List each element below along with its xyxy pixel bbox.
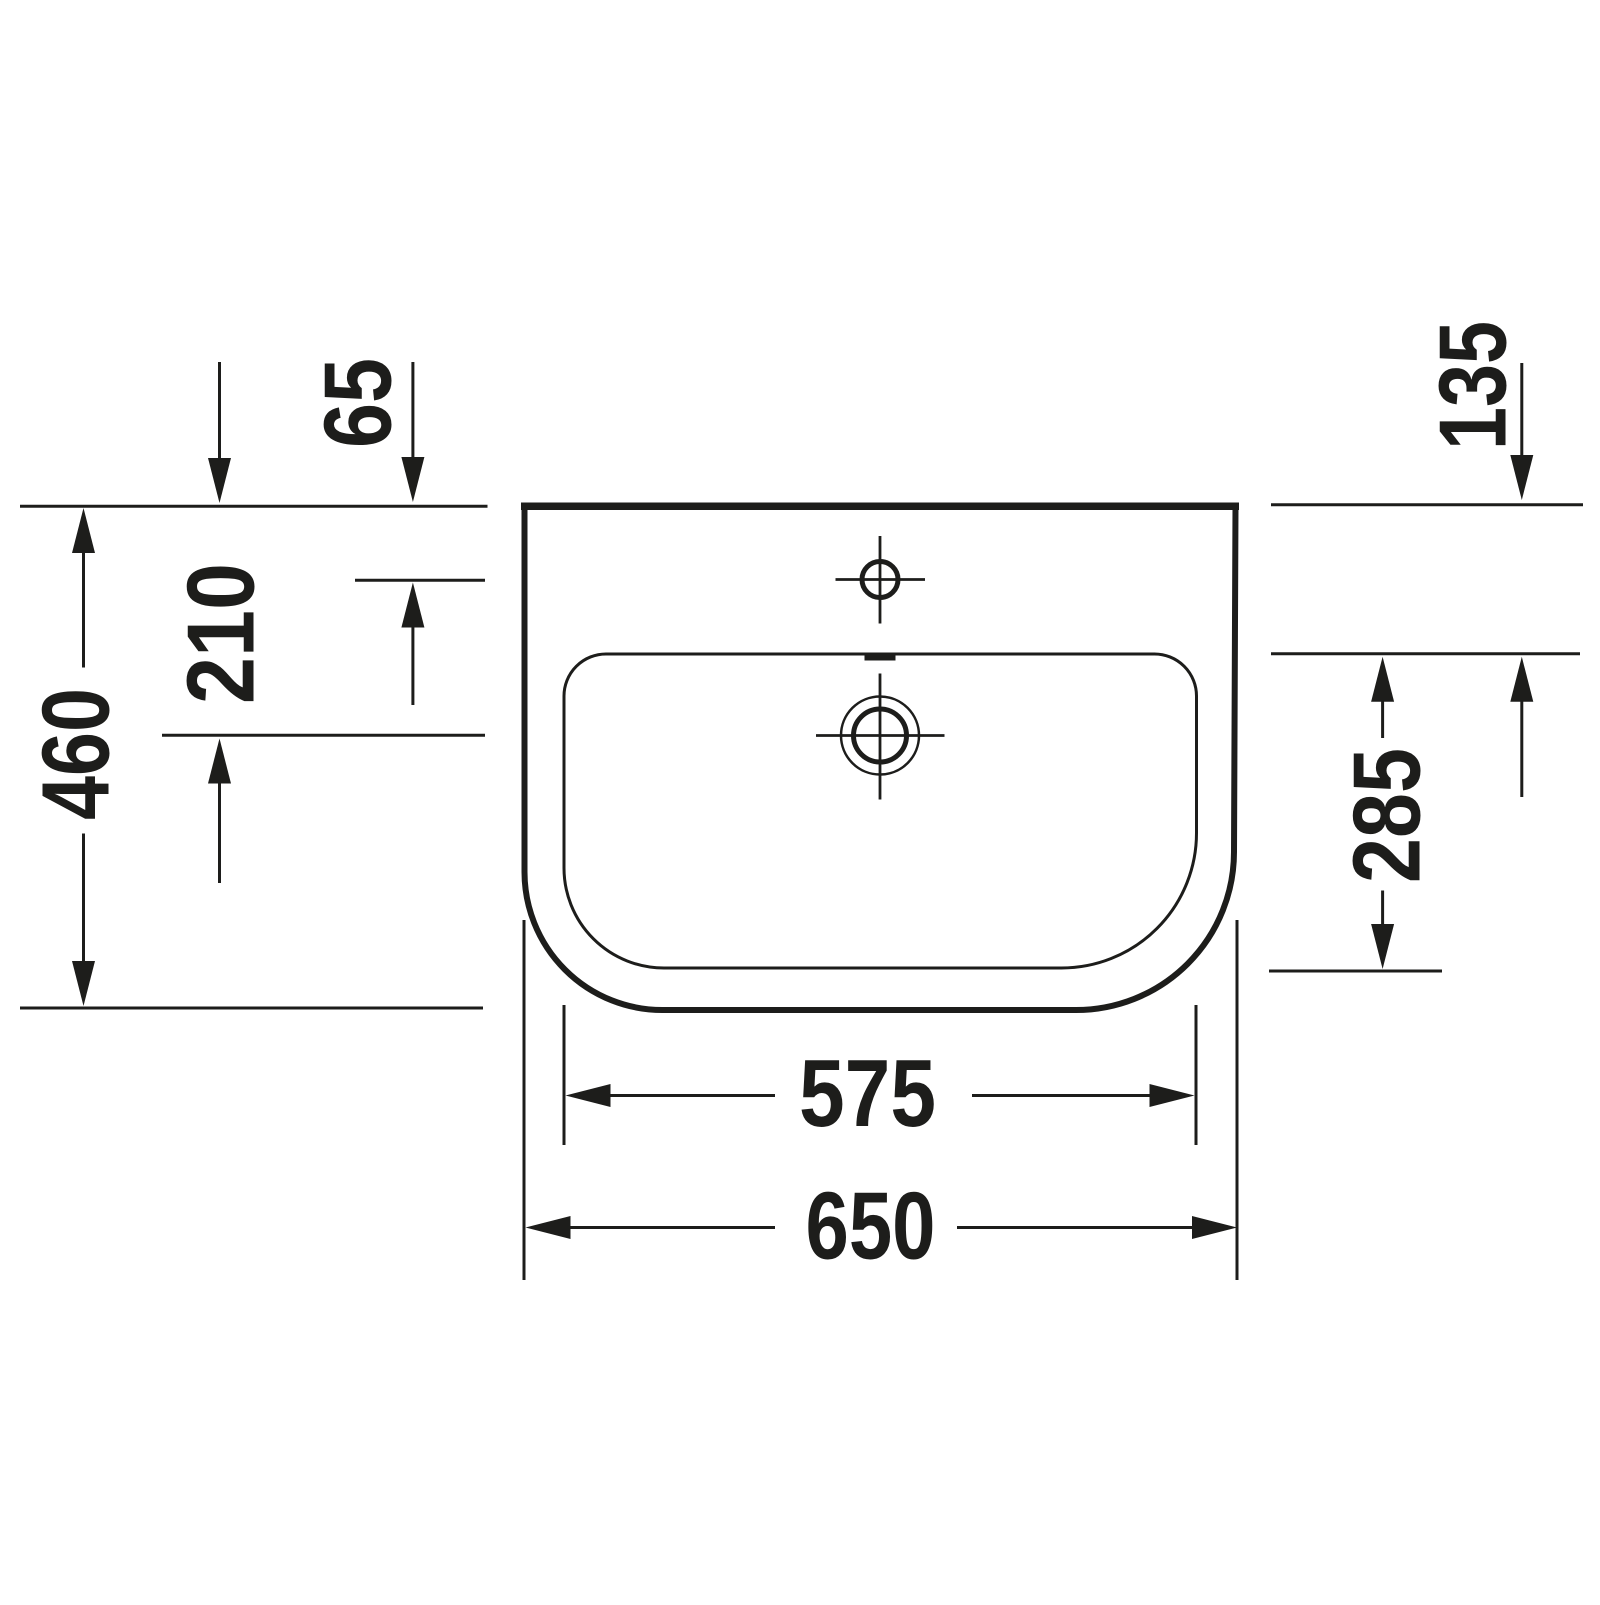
svg-text:135: 135 xyxy=(1420,321,1527,450)
svg-text:460: 460 xyxy=(23,688,130,820)
svg-text:285: 285 xyxy=(1334,748,1441,883)
svg-text:210: 210 xyxy=(168,563,275,704)
svg-text:650: 650 xyxy=(806,1173,936,1280)
svg-text:65: 65 xyxy=(305,358,412,448)
svg-text:575: 575 xyxy=(799,1040,936,1147)
